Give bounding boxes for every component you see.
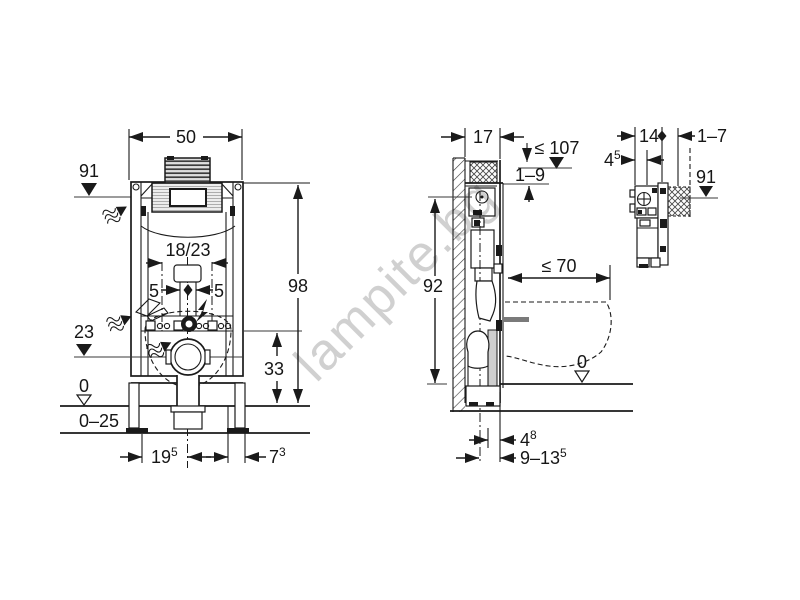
- screw-hole: [235, 184, 241, 190]
- level-marker-filled: [699, 186, 713, 197]
- flexible-arrow-icon: [102, 200, 132, 226]
- level-marker-open: [575, 371, 589, 382]
- dim-wall-range: 1–7: [697, 126, 727, 146]
- cistern-bottom-curve: [141, 226, 235, 237]
- rail-clip: [494, 264, 502, 273]
- corner-gusset: [141, 183, 153, 196]
- unit-tab: [630, 204, 635, 212]
- unit-part: [640, 220, 650, 226]
- tank-neck: [475, 268, 492, 281]
- flush-pipe-side: [488, 330, 497, 388]
- drain-pipe-fill: [177, 374, 199, 407]
- dim-total-height: 98: [288, 276, 308, 296]
- wc-pan-dashed: [505, 302, 611, 367]
- valve-part: [638, 210, 642, 214]
- dim-frame-depth: 17: [473, 127, 493, 147]
- level-marker-open: [77, 395, 91, 405]
- drain-tab: [205, 350, 210, 364]
- dim-leg-left: 195: [151, 445, 178, 467]
- detail-view: 14 1–7 45 91: [604, 126, 727, 268]
- unit-tab: [630, 190, 635, 197]
- side-view: 17 ≤ 107 1–9: [423, 127, 633, 468]
- fixing-hole: [196, 323, 201, 328]
- dim-depth: 14: [639, 126, 659, 146]
- dim-outlet-height: 23: [74, 322, 94, 342]
- front-view: 50 91 18/23: [60, 127, 310, 468]
- technical-drawing-page: 50 91 18/23: [0, 0, 800, 600]
- dim-leg-right: 73: [269, 445, 286, 467]
- fixing-hole: [218, 323, 223, 328]
- dim-width-top: 50: [176, 127, 196, 147]
- dim-offset-right: 5: [214, 281, 224, 301]
- foot-plate: [227, 428, 249, 433]
- level-marker-filled: [549, 157, 564, 169]
- drain-tab: [166, 350, 171, 364]
- dim-outlet-range: 9–135: [520, 446, 567, 468]
- cistern-top: [165, 158, 210, 183]
- center-diamond: [184, 284, 193, 296]
- dim-finish-range: 1–9: [515, 165, 545, 185]
- dim-offset: 45: [604, 148, 621, 170]
- foot-plate: [126, 428, 148, 433]
- flush-bend-cover: [174, 265, 201, 282]
- rail-clip: [660, 219, 667, 228]
- valve-part: [648, 208, 656, 215]
- flush-bend-side: [476, 281, 496, 321]
- dim-max-height: ≤ 107: [535, 138, 580, 158]
- unit-foot: [651, 258, 660, 267]
- dim-offset-left: 5: [149, 281, 159, 301]
- dim-pan-depth: ≤ 70: [542, 256, 577, 276]
- cistern-tab: [201, 156, 208, 160]
- dim-actuator-height: 91: [79, 161, 99, 181]
- dim-outlet-offset: 48: [520, 428, 537, 450]
- floor-zero-label: 0: [577, 352, 587, 372]
- corner-gusset: [221, 183, 233, 196]
- rail-clip: [660, 188, 666, 194]
- elbow-body: [174, 412, 202, 429]
- floor-zero-label: 0: [79, 376, 89, 396]
- dim-fixing-to-floor: 33: [264, 359, 284, 379]
- foot-pad: [639, 264, 648, 268]
- fixing-block: [146, 321, 155, 330]
- frame-leg: [129, 383, 139, 428]
- fixing-block: [208, 321, 217, 330]
- dim-actuator-height: 91: [696, 167, 716, 187]
- floor-range-label: 0–25: [79, 411, 119, 431]
- frame-leg: [235, 383, 245, 428]
- cistern-tab: [167, 156, 174, 160]
- threaded-rod: [503, 317, 529, 322]
- inspection-window: [170, 189, 206, 206]
- rail-clip: [660, 246, 666, 252]
- screw-hole: [133, 184, 139, 190]
- level-marker-filled: [76, 344, 92, 356]
- fixing-hole: [164, 323, 169, 328]
- rail-clip: [141, 206, 146, 216]
- wall-finish-hatch: [668, 187, 690, 216]
- pan-connector-arch: [467, 331, 489, 368]
- rail-clip: [496, 320, 502, 331]
- lightning-arrow-icon: [196, 299, 208, 322]
- water-connection-ring-center: [186, 321, 193, 328]
- foot-pad: [486, 402, 494, 406]
- rail-clip: [496, 245, 502, 256]
- valve-part: [652, 188, 657, 193]
- foot-pad: [469, 402, 478, 406]
- rail-clip: [230, 206, 235, 216]
- level-marker-filled: [81, 183, 97, 196]
- elbow-flange: [171, 406, 205, 412]
- installation-diagram: 50 91 18/23: [0, 0, 800, 600]
